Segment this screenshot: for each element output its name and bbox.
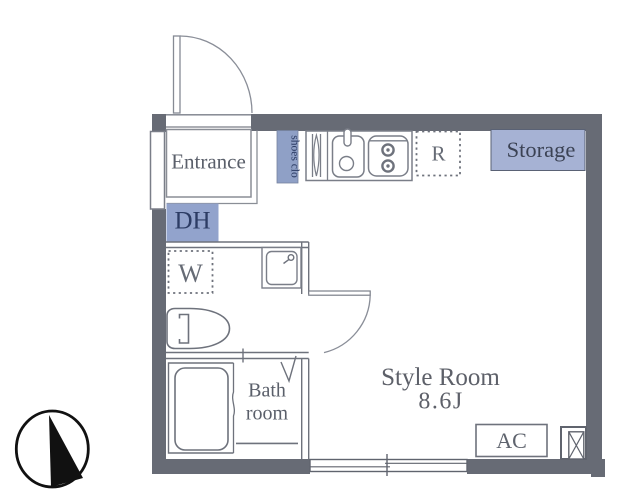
svg-text:W: W: [178, 259, 203, 288]
svg-text:8.6J: 8.6J: [418, 389, 463, 415]
svg-text:R: R: [431, 142, 445, 166]
svg-text:DH: DH: [174, 208, 210, 235]
svg-text:Bath: Bath: [248, 380, 286, 402]
svg-text:room: room: [246, 403, 289, 425]
svg-text:Style Room: Style Room: [381, 364, 500, 391]
svg-text:AC: AC: [496, 428, 527, 453]
svg-text:shoes clo: shoes clo: [289, 135, 301, 178]
svg-text:Entrance: Entrance: [171, 150, 246, 174]
svg-text:Storage: Storage: [507, 137, 576, 162]
